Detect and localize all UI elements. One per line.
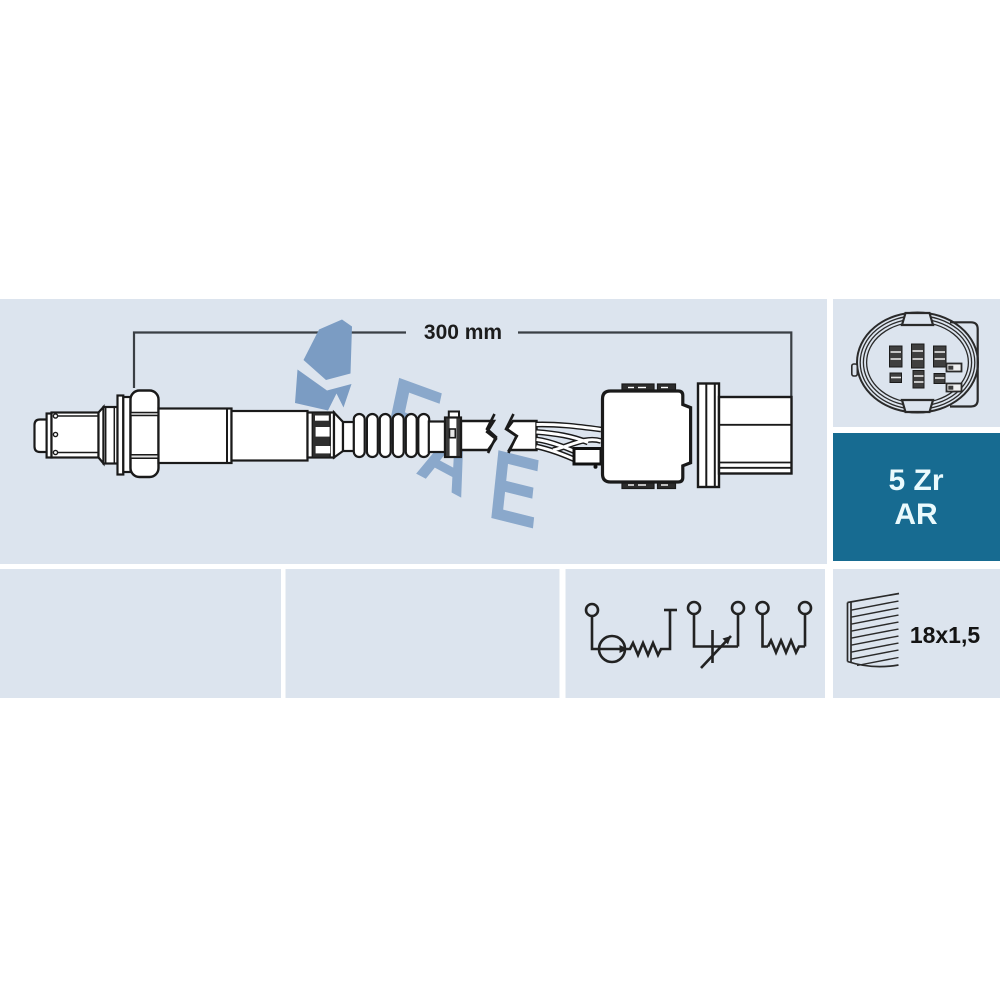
svg-text:300 mm: 300 mm <box>424 321 502 344</box>
svg-text:5 Zr: 5 Zr <box>888 464 943 497</box>
svg-text:AR: AR <box>894 498 938 531</box>
svg-text:18x1,5: 18x1,5 <box>910 622 981 648</box>
